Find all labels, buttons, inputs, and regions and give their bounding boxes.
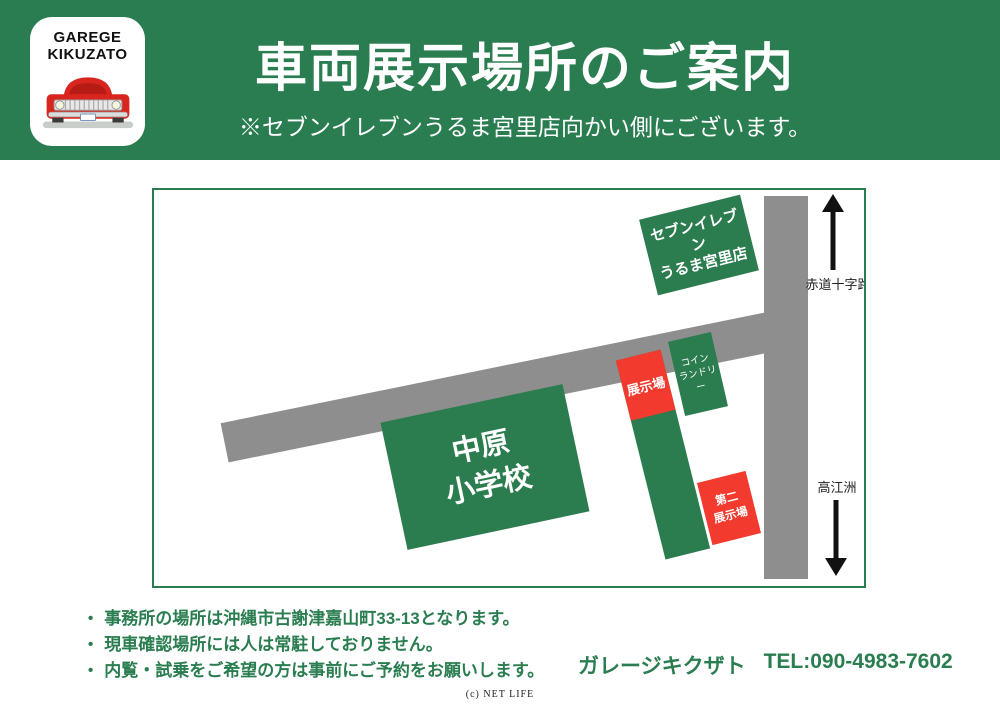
building-seven-eleven: セブンイレブン うるま宮里店 (639, 195, 759, 296)
note-item: • 現車確認場所には人は常駐しておりません。 (88, 632, 608, 658)
road-vertical (764, 196, 808, 579)
lot-display-label: 展示場 (624, 371, 666, 399)
bullet-icon: • (88, 658, 93, 684)
footer-credit: (c) NET LIFE (0, 689, 1000, 700)
bullet-icon: • (88, 606, 93, 632)
note-text: 事務所の場所は沖縄市古謝津嘉山町33-13となります。 (104, 606, 519, 632)
header: GAREGE KIKUZATO 車両展示場所のご案内 ※セブンイレブンうるま宮里… (0, 0, 1000, 160)
contact-name: ガレージキクザト (578, 650, 746, 680)
location-map: セブンイレブン うるま宮里店 コイン ランドリー 中原 小学校 展示場 第二 展… (152, 188, 866, 588)
north-arrow-icon (820, 194, 846, 272)
bullet-icon: • (88, 632, 93, 658)
note-text: 内覧・試乗をご希望の方は事前にご予約をお願いします。 (104, 658, 544, 684)
page-subtitle: ※セブンイレブンうるま宮里店向かい側にございます。 (115, 108, 935, 142)
south-arrow-icon (823, 500, 849, 576)
contact-tel: TEL:090-4983-7602 (764, 650, 953, 680)
note-item: • 内覧・試乗をご希望の方は事前にご予約をお願いします。 (88, 658, 608, 684)
note-item: • 事務所の場所は沖縄市古謝津嘉山町33-13となります。 (88, 606, 608, 632)
note-text: 現車確認場所には人は常駐しておりません。 (104, 632, 442, 658)
road-label-south: 高江洲 (816, 477, 858, 496)
contact-line: ガレージキクザト TEL:090-4983-7602 (578, 650, 988, 680)
flyer-page: GAREGE KIKUZATO 車両展示場所のご案内 ※セブンイレブンうるま宮里… (0, 0, 1000, 707)
page-title: 車両展示場所のご案内 (115, 26, 935, 101)
road-label-north: 赤道十字路 (802, 274, 866, 293)
notes-list: • 事務所の場所は沖縄市古謝津嘉山町33-13となります。 • 現車確認場所には… (88, 606, 608, 684)
logo-line1: GAREGE (53, 29, 121, 46)
